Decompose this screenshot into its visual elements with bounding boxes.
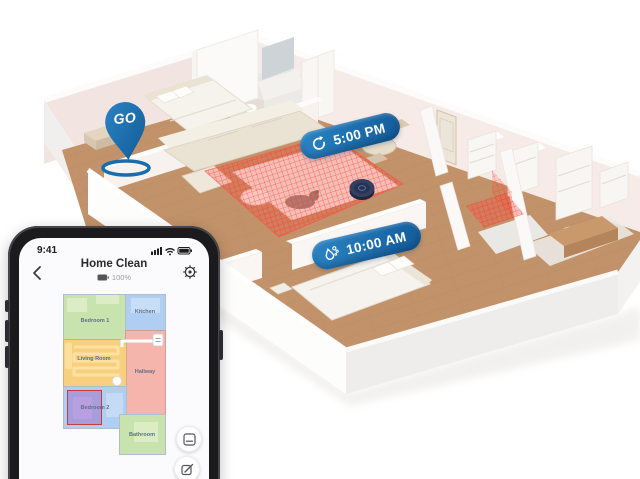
room-label: Kitchen: [135, 309, 155, 315]
settings-button[interactable]: [181, 263, 199, 281]
robot-position-dot[interactable]: [113, 377, 122, 386]
power-button[interactable]: [219, 330, 223, 360]
screenshot-root: GO 5:00 PM 10:00 AM 9:41: [0, 0, 640, 479]
battery-percent: 100%: [112, 273, 131, 282]
room-label: Living Room: [77, 356, 110, 362]
edit-map-button[interactable]: [174, 456, 200, 479]
room-label: Bedroom 1: [81, 318, 110, 324]
floor-map: Bedroom 1 Kitchen Living Room Hallway Be…: [64, 295, 165, 454]
schedule-time: 5:00 PM: [332, 120, 387, 147]
app-screen: 9:41: [19, 238, 209, 479]
app-header: Home Clean 100%: [19, 258, 209, 296]
mute-switch[interactable]: [5, 300, 9, 312]
room-label: Bathroom: [129, 432, 155, 438]
dock-button[interactable]: [176, 426, 202, 452]
repeat-clean-icon: [309, 134, 328, 153]
edit-icon: [181, 463, 194, 476]
battery-icon: [178, 248, 192, 255]
mop-wash-icon: [321, 243, 341, 263]
robot-battery-icon: [97, 274, 109, 281]
back-button[interactable]: [29, 264, 47, 282]
station-icon: [183, 433, 196, 446]
volume-down-button[interactable]: [5, 346, 9, 368]
room-label: Hallway: [135, 369, 155, 375]
status-bar: 9:41: [19, 238, 209, 256]
cleaning-path: [74, 347, 118, 381]
room-label: Bedroom 2: [81, 405, 110, 411]
phone-mockup: 9:41: [8, 226, 220, 479]
status-icons: [151, 245, 193, 256]
volume-up-button[interactable]: [5, 320, 9, 342]
signal-icon: [151, 247, 162, 255]
go-pin[interactable]: GO: [100, 98, 151, 164]
dock-icon: [153, 334, 163, 346]
wifi-icon: [166, 249, 174, 253]
robot-vacuum[interactable]: [350, 179, 375, 200]
status-time: 9:41: [37, 245, 57, 256]
